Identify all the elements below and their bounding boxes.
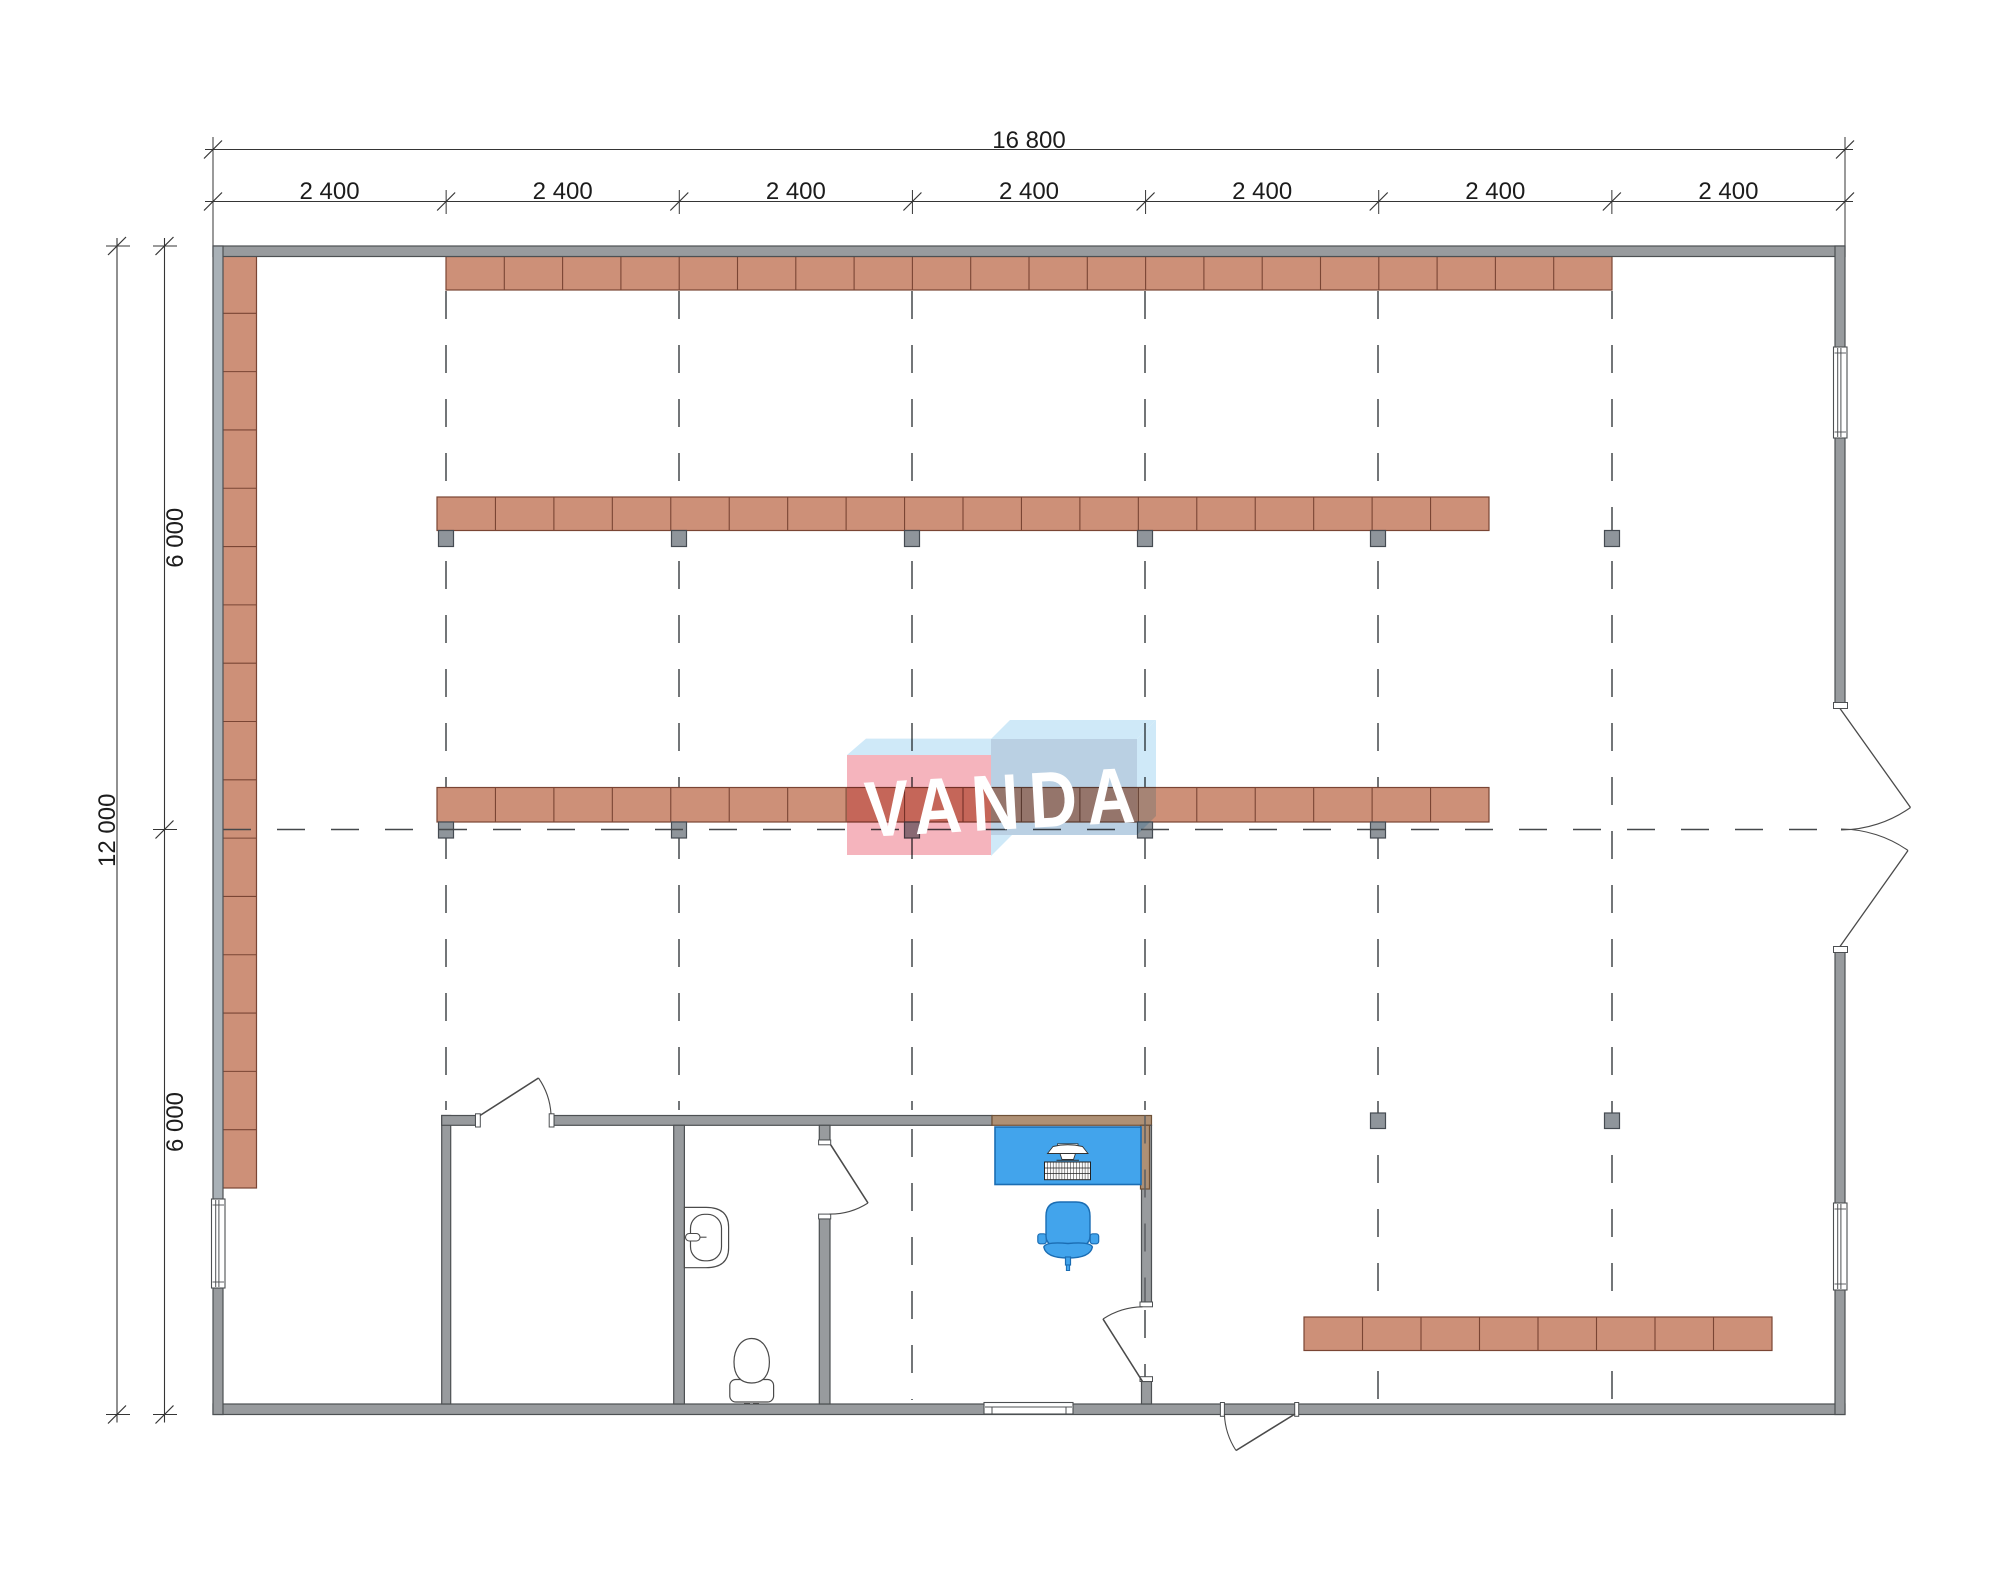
svg-text:2 400: 2 400 [533, 178, 593, 205]
svg-text:6 000: 6 000 [162, 1092, 189, 1152]
svg-text:16 800: 16 800 [992, 127, 1065, 154]
svg-text:2 400: 2 400 [1465, 178, 1525, 205]
svg-text:2 400: 2 400 [1698, 178, 1758, 205]
svg-text:2 400: 2 400 [999, 178, 1059, 205]
svg-text:12 000: 12 000 [94, 794, 121, 867]
svg-text:2 400: 2 400 [300, 178, 360, 205]
svg-text:VANDA: VANDA [862, 751, 1147, 854]
svg-text:2 400: 2 400 [766, 178, 826, 205]
svg-text:6 000: 6 000 [162, 508, 189, 568]
svg-text:2 400: 2 400 [1232, 178, 1292, 205]
